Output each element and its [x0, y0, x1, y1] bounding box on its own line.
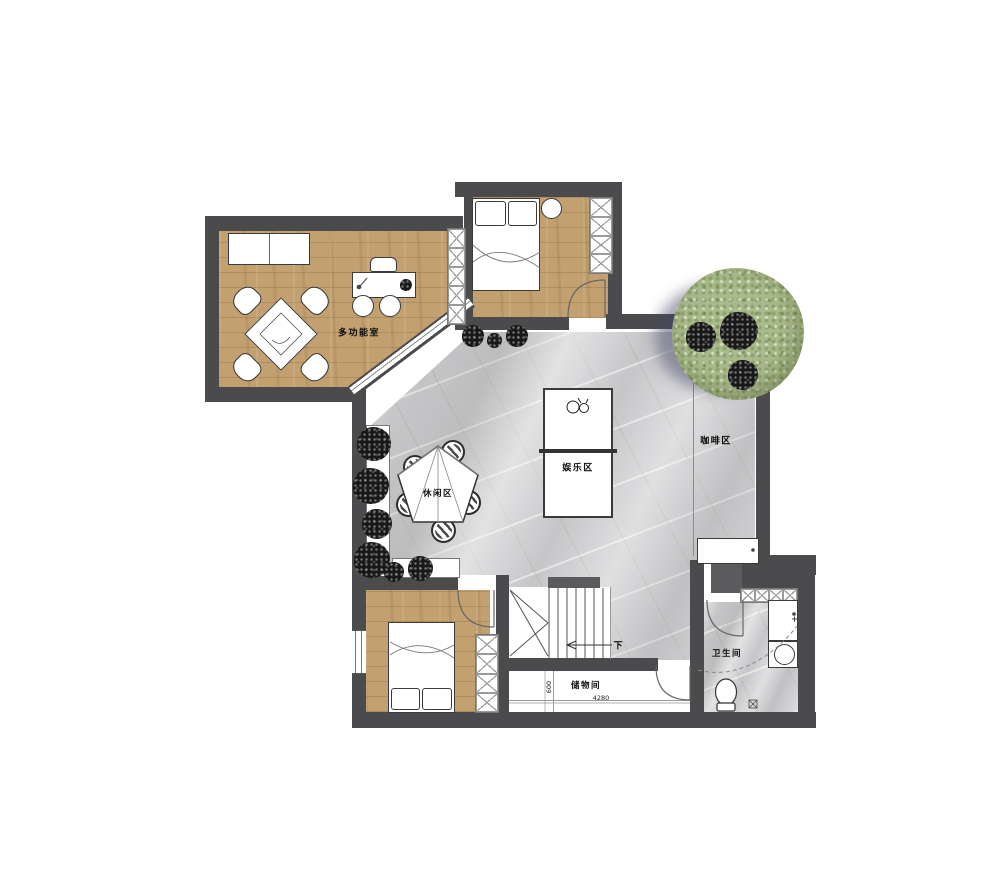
wall [509, 658, 658, 671]
cabinet-door [270, 234, 310, 264]
stairs-edge-line [610, 587, 611, 659]
desk-stool [352, 295, 374, 317]
pillow [391, 688, 420, 710]
washing-machine-drum [774, 644, 795, 665]
wardrobe-cell [590, 254, 612, 273]
stool [431, 518, 456, 543]
wardrobe [475, 634, 499, 713]
plant [728, 360, 758, 390]
room-label-leisure: 休闲区 [423, 490, 453, 499]
pillow [422, 688, 452, 710]
wardrobe-cell [590, 198, 612, 217]
wardrobe-cell [590, 217, 612, 236]
stairs-down-label: 下 [613, 643, 622, 652]
dimension-storage-depth: 600 [546, 681, 553, 693]
plant [720, 312, 758, 350]
desk-stool [379, 295, 401, 317]
wall [205, 387, 357, 402]
down-arrow [567, 641, 612, 649]
wardrobe-cell [448, 229, 465, 248]
desk-plant [400, 279, 412, 291]
wall [455, 182, 622, 197]
wardrobe-cell [476, 674, 498, 693]
floor-plan: 多功能室 娱乐区 休闲区 咖啡区 储物间 卫生间 下 4280 600 [0, 0, 1000, 876]
sideboard-cabinet [228, 233, 310, 265]
wall [690, 583, 704, 715]
room-label-entertainment: 娱乐区 [562, 465, 594, 474]
room-label-bathroom: 卫生间 [712, 650, 742, 659]
stool [441, 440, 465, 464]
wardrobe-cell [448, 248, 465, 267]
plant [384, 562, 404, 582]
plant [353, 468, 389, 504]
wardrobe-cell [476, 654, 498, 673]
stairs-threshold [548, 577, 600, 588]
wall [352, 576, 458, 590]
plant [462, 325, 484, 347]
cabinet-cell [755, 589, 769, 602]
wall [205, 216, 463, 231]
ping-pong-table [543, 388, 613, 518]
plant [487, 333, 502, 348]
cabinet-door [229, 234, 270, 264]
wardrobe-cell [590, 236, 612, 255]
stool [403, 455, 427, 479]
wall [798, 570, 815, 722]
bedside-table [541, 198, 562, 219]
wall [352, 712, 816, 728]
wardrobe [589, 197, 613, 274]
room-label-storage: 储物间 [571, 682, 601, 691]
dimension-storage-width: 4280 [593, 695, 610, 702]
pillow [475, 201, 506, 226]
storage-divider-line [553, 671, 554, 712]
cabinet-cell [741, 589, 755, 602]
wall [711, 564, 742, 593]
wardrobe-cell [448, 267, 465, 286]
room-label-coffee: 咖啡区 [700, 438, 732, 447]
stairs [510, 588, 603, 658]
desk-chair [370, 257, 397, 272]
dimension-line [509, 671, 690, 712]
room-label-multi-function: 多功能室 [338, 330, 380, 339]
wardrobe-cell [476, 635, 498, 654]
plant [357, 427, 391, 461]
stool [396, 492, 421, 517]
bathroom-vanity [768, 600, 798, 641]
wardrobe [447, 228, 466, 325]
plant [362, 509, 392, 539]
stool [456, 490, 481, 515]
wardrobe-cell [476, 693, 498, 712]
plant [408, 556, 433, 581]
plant [506, 325, 528, 347]
corridor-vanity [697, 538, 759, 564]
wall [205, 216, 219, 402]
window [352, 630, 366, 674]
pillow [508, 201, 537, 226]
plant [686, 322, 716, 352]
wardrobe-cell [448, 305, 465, 324]
ping-pong-net [539, 449, 617, 453]
wardrobe-cell [448, 286, 465, 305]
